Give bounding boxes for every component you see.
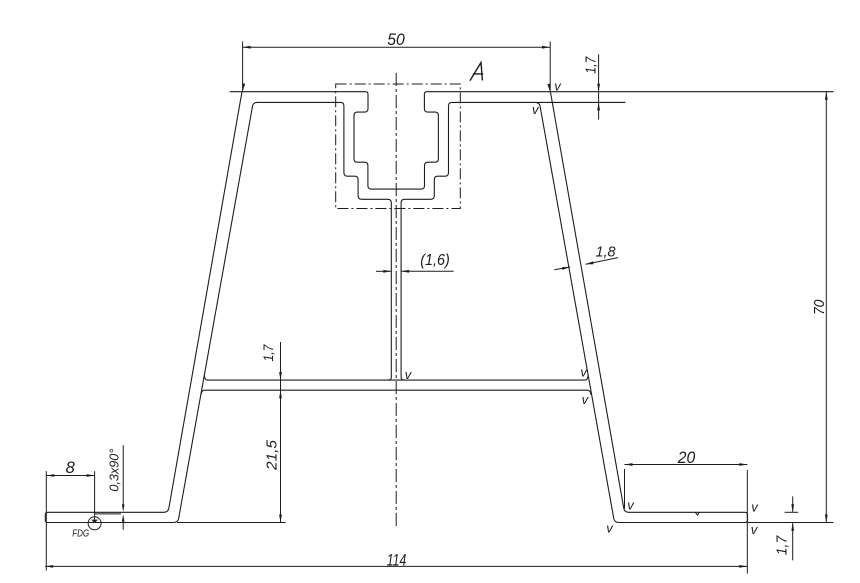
svg-text:v: v	[751, 522, 759, 537]
svg-text:v: v	[582, 392, 590, 407]
svg-text:50: 50	[387, 31, 405, 49]
svg-text:1,7: 1,7	[583, 56, 599, 74]
svg-text:1,7: 1,7	[261, 344, 276, 361]
svg-text:70: 70	[811, 299, 828, 315]
svg-text:(1,6): (1,6)	[420, 252, 450, 269]
svg-text:114: 114	[387, 551, 407, 569]
svg-text:v: v	[751, 500, 759, 515]
svg-text:1,7: 1,7	[775, 535, 791, 555]
svg-text:20: 20	[677, 449, 696, 467]
svg-text:v: v	[554, 78, 562, 93]
svg-text:FDG: FDG	[72, 528, 89, 540]
svg-text:v: v	[627, 498, 635, 513]
svg-text:8: 8	[66, 459, 76, 477]
svg-text:v: v	[405, 367, 413, 382]
svg-text:1,8: 1,8	[596, 244, 617, 261]
svg-text:21,5: 21,5	[264, 439, 281, 471]
svg-text:0,3x90°: 0,3x90°	[108, 449, 122, 492]
svg-text:v: v	[606, 521, 614, 536]
